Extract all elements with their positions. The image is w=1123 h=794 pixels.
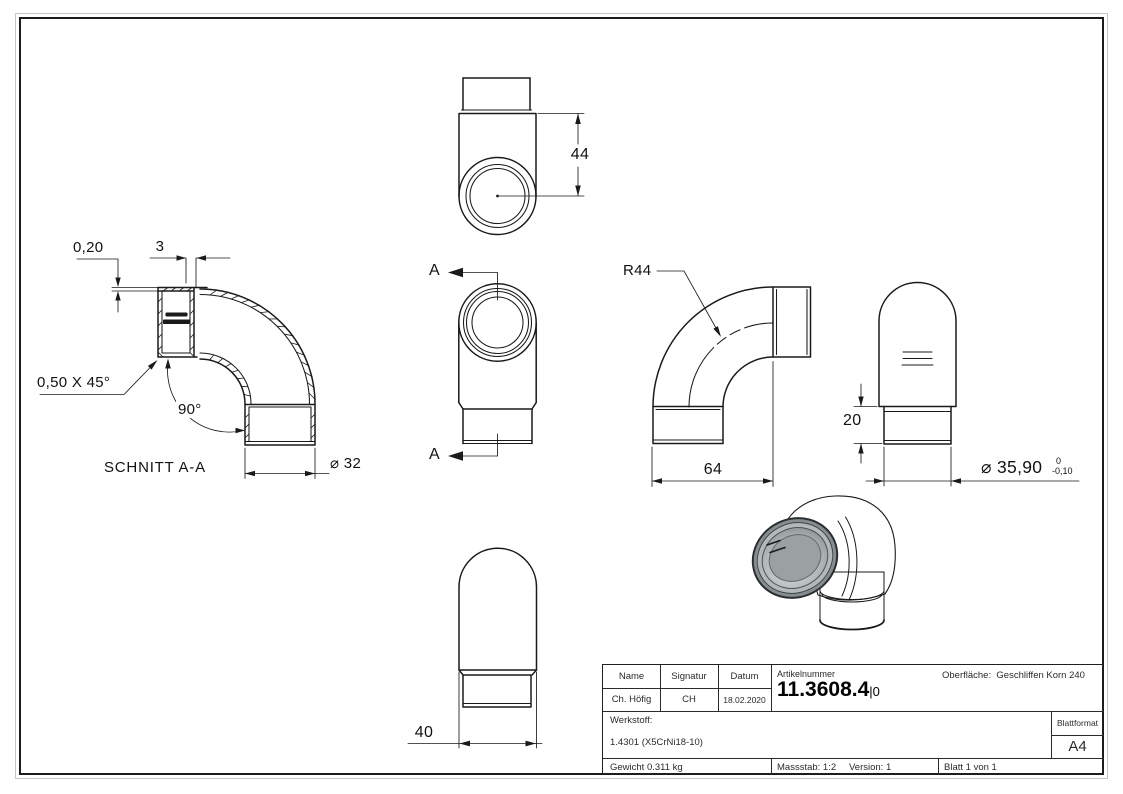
surface-row: Oberfläche: Geschliffen Korn 240 bbox=[942, 670, 1085, 681]
dim-44-label: 44 bbox=[561, 146, 599, 164]
dim-40-label: 40 bbox=[409, 724, 439, 742]
tolerance-lower: -0,10 bbox=[1052, 466, 1073, 476]
signature-header-cell: Signatur bbox=[660, 665, 718, 688]
material-value: 1.4301 (X5CrNi18-10) bbox=[610, 737, 703, 748]
signature-value-cell: CH bbox=[660, 688, 718, 711]
version-value: Version: 1 bbox=[849, 762, 891, 773]
dim-020-label: 0,20 bbox=[73, 239, 103, 256]
tb-divider bbox=[938, 758, 939, 775]
bore-dia-label: ⌀ 32 bbox=[330, 454, 361, 472]
drawing-sheet: 44 A A 0,20 3 0,50 X 45° 90° ⌀ 32 SCHNIT… bbox=[0, 0, 1123, 794]
section-title: SCHNITT A-A bbox=[104, 459, 206, 476]
tb-divider bbox=[603, 711, 1104, 712]
date-value-cell: 18.02.2020 bbox=[718, 688, 771, 711]
cut-letter-bottom: A bbox=[429, 446, 440, 464]
cut-letter-top: A bbox=[429, 262, 440, 280]
front-view-drawing bbox=[448, 268, 536, 461]
dim-20-label: 20 bbox=[843, 412, 861, 430]
bottom-view-drawing bbox=[408, 548, 542, 748]
side-view-drawing bbox=[652, 271, 811, 487]
surface-value: Geschliffen Korn 240 bbox=[996, 670, 1085, 681]
name-value-cell: Ch. Höfig bbox=[603, 688, 660, 711]
end-view-drawing bbox=[854, 283, 1079, 487]
dim-64-label: 64 bbox=[697, 461, 729, 479]
title-block: Name Signatur Datum Ch. Höfig CH 18.02.2… bbox=[602, 664, 1103, 774]
chamfer-dim-label: 0,50 X 45° bbox=[37, 374, 110, 391]
sheet-value: Blatt 1 von 1 bbox=[944, 762, 997, 773]
article-number-value: 11.3608.4|0 bbox=[777, 678, 880, 702]
part-3d-render bbox=[739, 496, 895, 630]
outer-dia-label: ⌀ 35,90 bbox=[981, 457, 1042, 478]
tolerance-upper: 0 bbox=[1056, 456, 1061, 466]
material-label: Werkstoff: bbox=[610, 715, 652, 726]
scale-value: Massstab: 1:2 bbox=[777, 762, 836, 773]
format-value-cell: A4 bbox=[1051, 735, 1104, 759]
radius-r44-label: R44 bbox=[623, 262, 651, 279]
tb-divider bbox=[603, 758, 1104, 759]
weight-value: Gewicht 0.311 kg bbox=[610, 762, 683, 773]
date-header-cell: Datum bbox=[718, 665, 771, 688]
name-header-cell: Name bbox=[603, 665, 660, 688]
article-number-suffix: |0 bbox=[869, 684, 880, 699]
section-view-drawing bbox=[40, 255, 329, 478]
dim-3-label: 3 bbox=[150, 238, 170, 255]
tb-divider bbox=[771, 758, 772, 775]
format-label-cell: Blattformat bbox=[1051, 711, 1104, 735]
surface-label: Oberfläche: bbox=[942, 670, 991, 681]
article-number-main: 11.3608.4 bbox=[777, 678, 869, 701]
angle-90-label: 90° bbox=[176, 401, 204, 418]
